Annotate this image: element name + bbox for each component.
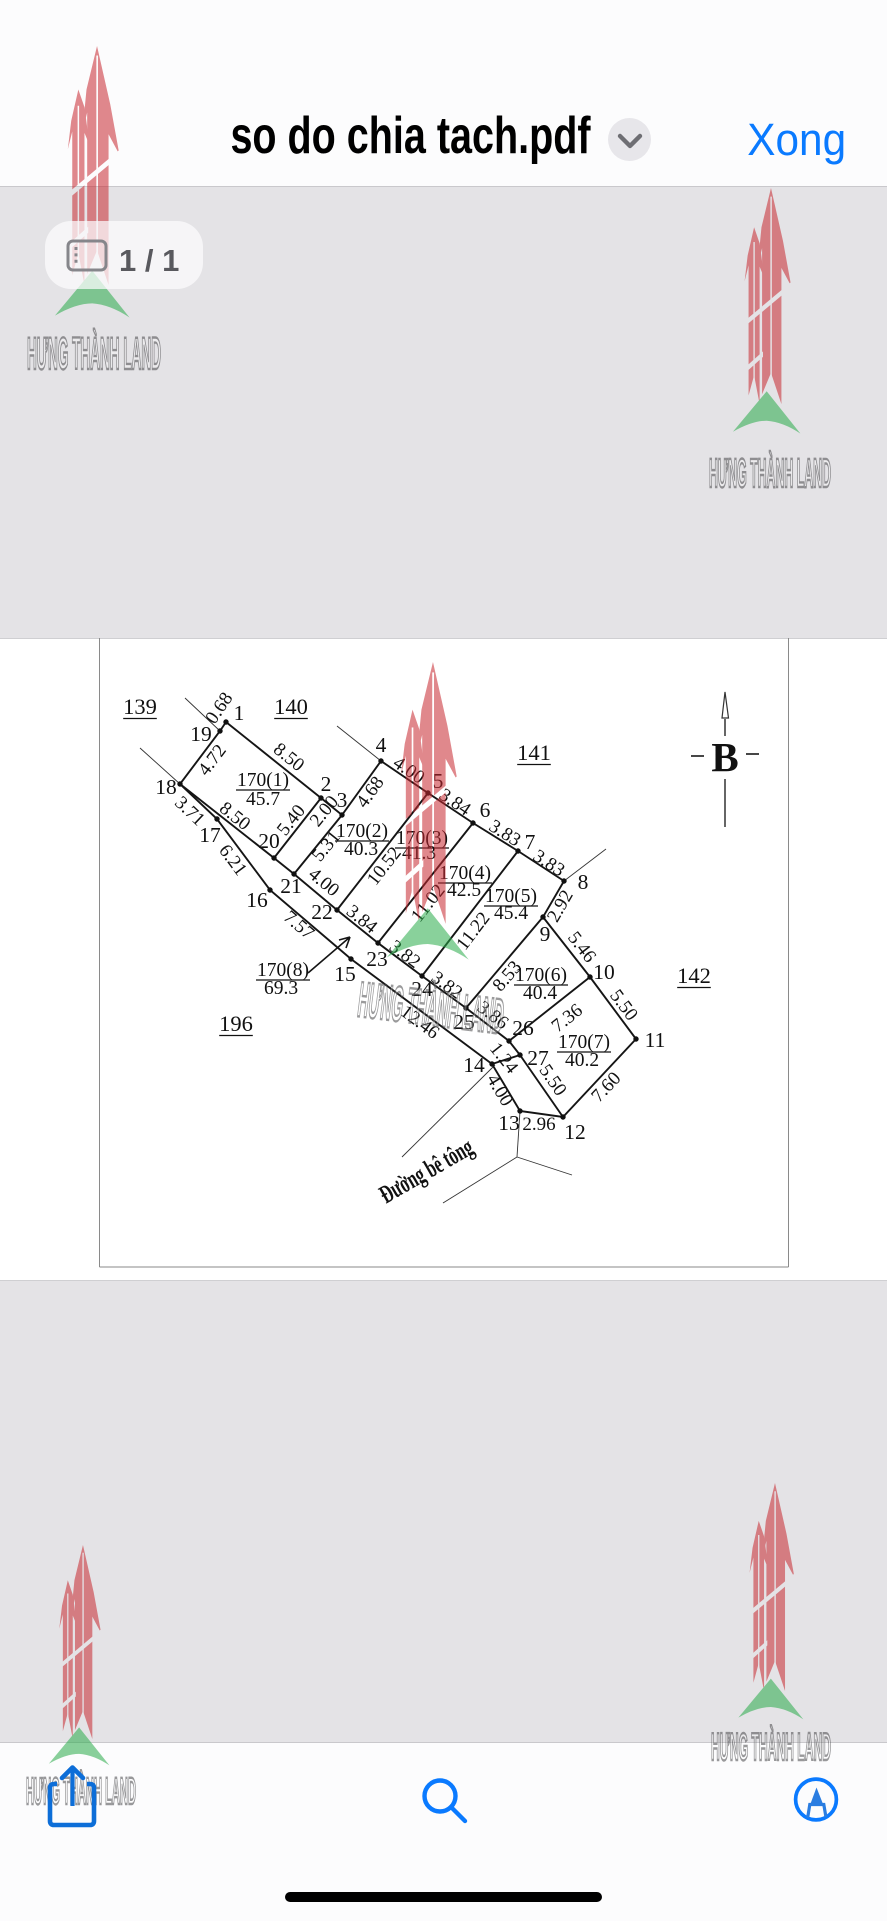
svg-text:HƯNG THÀNH LAND: HƯNG THÀNH LAND xyxy=(27,328,161,379)
svg-text:HƯNG THÀNH LAND: HƯNG THÀNH LAND xyxy=(355,971,507,1044)
svg-text:HƯNG THÀNH LAND: HƯNG THÀNH LAND xyxy=(709,450,831,496)
svg-text:HƯNG THÀNH LAND: HƯNG THÀNH LAND xyxy=(711,1725,831,1769)
